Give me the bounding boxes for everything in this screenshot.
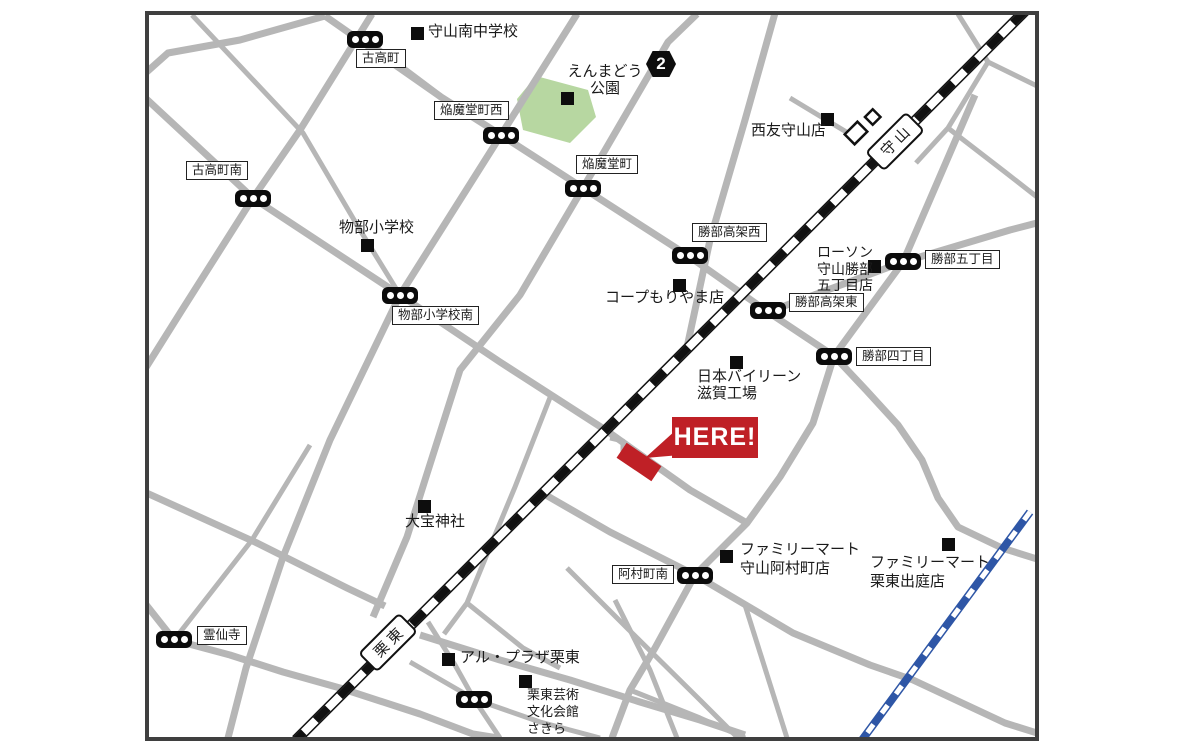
traffic-signal-icon bbox=[347, 31, 383, 48]
intersection-label-ryosenji: 霊仙寺 bbox=[197, 626, 247, 645]
traffic-signal-icon bbox=[382, 287, 418, 304]
traffic-signal-icon bbox=[672, 247, 708, 264]
place-label-seiyu-moriyama: 西友守山店 bbox=[751, 123, 826, 140]
intersection-label-furutaka-cho-minami: 古高町南 bbox=[186, 161, 248, 180]
traffic-signal-icon bbox=[235, 190, 271, 207]
destination-building bbox=[617, 443, 662, 481]
place-label-moriyama-minami-jhs: 守山南中学校 bbox=[428, 24, 518, 41]
place-label-familymart-ritto-deba: ファミリーマート 栗東出庭店 bbox=[870, 553, 990, 591]
place-label-daiho-shrine: 大宝神社 bbox=[405, 514, 465, 531]
traffic-signal-icon bbox=[483, 127, 519, 144]
place-label-nihon-vilene: 日本バイリーン 滋賀工場 bbox=[697, 369, 801, 402]
traffic-signal-icon bbox=[677, 567, 713, 584]
traffic-signal-icon bbox=[885, 253, 921, 270]
intersection-label-katsube-koka-nishi: 勝部高架西 bbox=[692, 223, 767, 242]
intersection-label-amura-cho-minami: 阿村町南 bbox=[612, 565, 674, 584]
intersection-label-furutaka-cho: 古高町 bbox=[356, 49, 406, 68]
place-label-al-plaza-ritto: アル・プラザ栗東 bbox=[460, 650, 580, 667]
intersection-label-enmado-cho-nishi: 焔魔堂町西 bbox=[434, 101, 509, 120]
facility-marker bbox=[442, 653, 455, 666]
intersection-label-katsube-4chome: 勝部四丁目 bbox=[856, 347, 931, 366]
place-label-coop-moriyama: コープもりやま店 bbox=[605, 290, 724, 307]
intersection-label-monobe-sho-minami: 物部小学校南 bbox=[392, 306, 479, 325]
facility-marker bbox=[942, 538, 955, 551]
traffic-signal-icon bbox=[750, 302, 786, 319]
traffic-signal-icon bbox=[816, 348, 852, 365]
access-map: 古高町 焔魔堂町西 古高町南 焔魔堂町 物部小学校南 勝部高架西 勝部五丁目 勝… bbox=[0, 0, 1200, 752]
facility-marker bbox=[418, 500, 431, 513]
facility-marker bbox=[361, 239, 374, 252]
traffic-signal-icon bbox=[565, 180, 601, 197]
place-label-familymart-amuracho: ファミリーマート 守山阿村町店 bbox=[740, 540, 860, 578]
place-label-ritto-sakira: 栗東芸術 文化会館 さきら bbox=[527, 686, 579, 737]
intersection-label-katsube-koka-higashi: 勝部高架東 bbox=[789, 293, 864, 312]
facility-marker bbox=[411, 27, 424, 40]
place-label-lawson-moriyama-katsube: ローソン 守山勝部 五丁目店 bbox=[817, 244, 873, 294]
intersection-label-katsube-5chome: 勝部五丁目 bbox=[925, 250, 1000, 269]
station-building bbox=[865, 109, 881, 125]
place-label-monobe-elementary: 物部小学校 bbox=[339, 220, 414, 237]
station-building bbox=[845, 122, 868, 145]
place-label-enmado-park: えんまどう 公園 bbox=[566, 64, 644, 97]
traffic-signal-icon bbox=[156, 631, 192, 648]
intersection-label-enmado-cho: 焔魔堂町 bbox=[576, 155, 638, 174]
here-marker: HERE! bbox=[672, 417, 758, 458]
facility-marker bbox=[720, 550, 733, 563]
traffic-signal-icon bbox=[456, 691, 492, 708]
